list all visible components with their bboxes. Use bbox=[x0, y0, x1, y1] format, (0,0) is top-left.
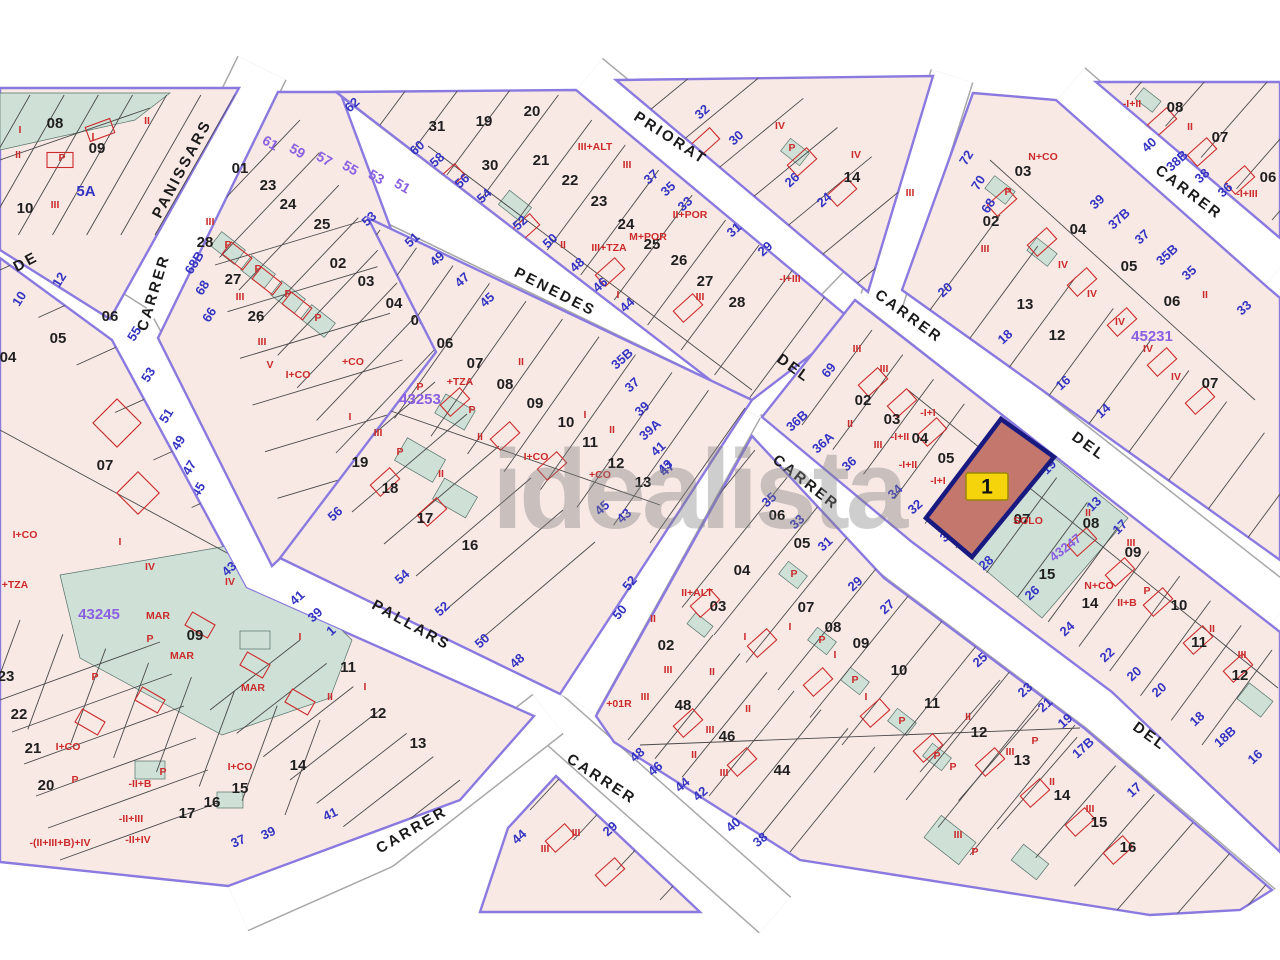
cadastre-annotation: III bbox=[853, 343, 862, 355]
parcel-number: 07 bbox=[97, 457, 114, 474]
parcel-number: 08 bbox=[47, 115, 64, 132]
parcel-number: 09 bbox=[187, 627, 204, 644]
cadastre-annotation: I bbox=[789, 621, 792, 633]
cadastre-annotation: I bbox=[865, 691, 868, 703]
cadastre-annotation: M+POR bbox=[629, 231, 667, 243]
parcel-number: 04 bbox=[386, 295, 403, 312]
cadastre-annotation: II bbox=[609, 424, 615, 436]
cadastre-annotation: II bbox=[847, 418, 853, 430]
parcel-number: 14 bbox=[844, 169, 861, 186]
cadastre-annotation: MAR bbox=[146, 610, 170, 622]
parcel-number: 06 bbox=[1164, 293, 1181, 310]
cadastre-annotation: I+CO bbox=[286, 369, 311, 381]
cadastre-annotation: II bbox=[1209, 623, 1215, 635]
cadastre-annotation: II bbox=[144, 115, 150, 127]
cadastre-annotation: I bbox=[299, 631, 302, 643]
parcel-number: 02 bbox=[855, 392, 872, 409]
cadastre-annotation: II+B bbox=[1117, 597, 1137, 609]
parcel-number: 03 bbox=[1015, 163, 1032, 180]
parcel-number: 02 bbox=[658, 637, 675, 654]
parcel-number: 30 bbox=[482, 157, 499, 174]
cadastre-annotation: P bbox=[933, 750, 940, 762]
parcel-number: 11 bbox=[340, 659, 356, 676]
cadastre-annotation: II bbox=[560, 239, 566, 251]
cadastre-annotation: -I+II bbox=[1123, 98, 1141, 110]
parcel-number: 16 bbox=[462, 537, 479, 554]
parcel-number: 04 bbox=[0, 349, 17, 366]
cadastre-annotation: P bbox=[1143, 585, 1150, 597]
parcel-number: 02 bbox=[330, 255, 347, 272]
cadastre-annotation: I bbox=[19, 124, 22, 136]
cadastre-annotation: I+CO bbox=[13, 529, 38, 541]
parcel-number: 17 bbox=[179, 805, 196, 822]
parcel-number: 07 bbox=[467, 355, 484, 372]
parcel-number: 24 bbox=[280, 196, 297, 213]
parcel-number: 01 bbox=[232, 160, 249, 177]
parcel-number: 17 bbox=[417, 510, 434, 527]
house-number: 5A bbox=[76, 183, 95, 200]
parcel-number: 06 bbox=[769, 507, 786, 524]
cadastre-annotation: III+TZA bbox=[591, 242, 627, 254]
cadastre-annotation: II bbox=[691, 749, 697, 761]
cadastre-annotation: I bbox=[584, 409, 587, 421]
cadastre-annotation: III bbox=[874, 439, 883, 451]
cadastre-annotation: II bbox=[518, 356, 524, 368]
cadastre-annotation: P bbox=[790, 568, 797, 580]
parcel-number: 12 bbox=[1049, 327, 1066, 344]
parcel-number: 04 bbox=[1070, 221, 1087, 238]
cadastre-annotation: III bbox=[1006, 746, 1015, 758]
map-canvas[interactable]: 0809105A55IIIIPIIIII01232425282726020304… bbox=[0, 0, 1280, 960]
parcel-number: 11 bbox=[582, 434, 598, 451]
cadastre-annotation: IV bbox=[145, 561, 155, 573]
cadastre-annotation: P bbox=[314, 312, 321, 324]
parcel-number: 16 bbox=[204, 794, 221, 811]
parcel-number: 18 bbox=[382, 480, 399, 497]
parcel-number: 22 bbox=[11, 706, 28, 723]
cadastre-annotation: II bbox=[650, 613, 656, 625]
cadastre-annotation: +CO bbox=[342, 356, 364, 368]
cadastre-annotation: P bbox=[58, 152, 65, 164]
parcel-number: 03 bbox=[358, 273, 375, 290]
cadastre-annotation: P bbox=[468, 404, 475, 416]
cadastre-annotation: II bbox=[477, 431, 483, 443]
block-id: 45231 bbox=[1131, 328, 1173, 345]
parcel-number: 10 bbox=[891, 662, 908, 679]
cadastre-annotation: III bbox=[572, 827, 581, 839]
cadastre-annotation: I+CO bbox=[228, 761, 253, 773]
cadastre-annotation: I bbox=[349, 411, 352, 423]
cadastre-annotation: III bbox=[954, 829, 963, 841]
parcel-number: 48 bbox=[675, 697, 692, 714]
parcel-number: 13 bbox=[1014, 752, 1031, 769]
cadastre-annotation: I bbox=[744, 631, 747, 643]
cadastre-annotation: III bbox=[981, 243, 990, 255]
parcel-number: 05 bbox=[1121, 258, 1138, 275]
parcel-number: 10 bbox=[17, 200, 34, 217]
cadastre-annotation: II bbox=[327, 691, 333, 703]
cadastre-annotation: III bbox=[641, 691, 650, 703]
cadastre-annotation: P bbox=[788, 142, 795, 154]
parcel-number: 44 bbox=[774, 762, 791, 779]
parcel-number: 21 bbox=[25, 740, 42, 757]
cadastre-annotation: P bbox=[898, 715, 905, 727]
parcel-number: 06 bbox=[102, 308, 119, 325]
parcel-number: 14 bbox=[1054, 787, 1071, 804]
block-id: 43253 bbox=[399, 391, 441, 408]
parcel-number: 05 bbox=[794, 535, 811, 552]
cadastre-annotation: IV bbox=[1058, 259, 1068, 271]
parcel-number: 15 bbox=[1039, 566, 1056, 583]
cadastre-annotation: -II+III bbox=[119, 813, 143, 825]
parcel-number: 13 bbox=[1017, 296, 1034, 313]
cadastre-annotation: -I+II bbox=[899, 459, 917, 471]
cadastre-annotation: III bbox=[706, 724, 715, 736]
parcel-number: 04 bbox=[912, 430, 929, 447]
parcel-number: 27 bbox=[697, 273, 714, 290]
parcel-number: 23 bbox=[591, 193, 608, 210]
cadastre-annotation: I+CO bbox=[524, 451, 549, 463]
cadastre-annotation: III bbox=[374, 427, 383, 439]
parcel-number: 23 bbox=[260, 177, 277, 194]
cadastre-annotation: -I+I bbox=[930, 475, 946, 487]
parcel-number: 15 bbox=[1091, 814, 1108, 831]
parcel-number: 04 bbox=[734, 562, 751, 579]
parcel-number: 05 bbox=[938, 450, 955, 467]
parcel-number: 08 bbox=[825, 619, 842, 636]
cadastre-annotation: -II+IV bbox=[125, 834, 150, 846]
parcel-number: 03 bbox=[884, 411, 901, 428]
cadastre-annotation: III bbox=[236, 291, 245, 303]
cadastre-annotation: III bbox=[541, 843, 550, 855]
green-parcel bbox=[240, 631, 270, 649]
cadastre-annotation: P bbox=[1004, 186, 1011, 198]
cadastre-annotation: III bbox=[206, 216, 215, 228]
cadastre-annotation: II bbox=[1202, 289, 1208, 301]
cadastre-annotation: N+CO bbox=[1028, 151, 1057, 163]
cadastre-annotation: P bbox=[1031, 735, 1038, 747]
cadastre-annotation: II+POR bbox=[673, 209, 708, 221]
cadastre-annotation: II bbox=[1085, 507, 1091, 519]
cadastre-annotation: P bbox=[851, 674, 858, 686]
cadastre-annotation: MAR bbox=[241, 682, 265, 694]
cadastre-annotation: II bbox=[709, 666, 715, 678]
cadastre-annotation: I+CO bbox=[56, 741, 81, 753]
cadastre-annotation: -II+B bbox=[128, 778, 151, 790]
parcel-number: 26 bbox=[248, 308, 265, 325]
parcel-number: 14 bbox=[290, 757, 307, 774]
cadastre-annotation: -I+II bbox=[891, 431, 909, 443]
cadastre-annotation: IV bbox=[1087, 288, 1097, 300]
parcel-number: 11 bbox=[1191, 634, 1207, 651]
cadastre-annotation: +TZA bbox=[447, 376, 474, 388]
parcel-number: 21 bbox=[533, 152, 550, 169]
parcel-number: 22 bbox=[562, 172, 579, 189]
block-id: 43245 bbox=[78, 606, 120, 623]
cadastre-annotation: IV bbox=[851, 149, 861, 161]
cadastre-annotation: P bbox=[224, 239, 231, 251]
cadastre-annotation: III bbox=[258, 336, 267, 348]
cadastre-annotation: P bbox=[254, 263, 261, 275]
cadastre-annotation: I bbox=[119, 536, 122, 548]
cadastre-annotation: III bbox=[880, 363, 889, 375]
parcel-number: 07 bbox=[1202, 375, 1219, 392]
cadastre-annotation: III bbox=[664, 664, 673, 676]
parcel-number: 08 bbox=[1167, 99, 1184, 116]
cadastre-annotation: +CO bbox=[589, 469, 611, 481]
parcel-number: 16 bbox=[1120, 839, 1137, 856]
cadastre-annotation: IV bbox=[1115, 316, 1125, 328]
cadastre-annotation: III+ALT bbox=[578, 141, 613, 153]
parcel-number: 09 bbox=[527, 395, 544, 412]
cadastre-annotation: I bbox=[92, 131, 95, 143]
parcel-number: 13 bbox=[635, 474, 652, 491]
cadastre-annotation: II bbox=[1187, 121, 1193, 133]
cadastre-annotation: SOLO bbox=[1013, 515, 1043, 527]
parcel-number: 08 bbox=[497, 376, 514, 393]
parcel-number: 10 bbox=[558, 414, 575, 431]
parcel-number: 19 bbox=[476, 113, 493, 130]
cadastre-annotation: III bbox=[623, 159, 632, 171]
cadastre-annotation: IV bbox=[1171, 371, 1181, 383]
parcel-number: 09 bbox=[853, 635, 870, 652]
parcel-number: 07 bbox=[798, 599, 815, 616]
cadastre-annotation: P bbox=[71, 774, 78, 786]
parcel-number: 23 bbox=[0, 668, 14, 685]
parcel-number: 15 bbox=[232, 780, 249, 797]
parcel-number: 10 bbox=[1171, 597, 1188, 614]
cadastre-annotation: II bbox=[745, 703, 751, 715]
cadastre-annotation: III bbox=[1086, 803, 1095, 815]
cadastre-annotation: P bbox=[971, 846, 978, 858]
cadastre-annotation: V bbox=[266, 359, 273, 371]
parcel-number: 26 bbox=[671, 252, 688, 269]
cadastre-annotation: I bbox=[364, 681, 367, 693]
cadastral-map[interactable]: 0809105A55IIIIPIIIII01232425282726020304… bbox=[0, 0, 1280, 960]
parcel-number: 46 bbox=[719, 728, 736, 745]
cadastre-annotation: III bbox=[1238, 649, 1247, 661]
cadastre-annotation: IV bbox=[775, 120, 785, 132]
parcel-number: 14 bbox=[1082, 595, 1099, 612]
parcel-number: 02 bbox=[983, 213, 1000, 230]
parcel-number: 31 bbox=[429, 118, 446, 135]
parcel-number: 20 bbox=[524, 103, 541, 120]
parcel-number: 27 bbox=[225, 271, 242, 288]
cadastre-annotation: P bbox=[146, 633, 153, 645]
cadastre-annotation: P bbox=[91, 671, 98, 683]
cadastre-annotation: N+CO bbox=[1084, 580, 1113, 592]
parcel-number: 25 bbox=[314, 216, 331, 233]
cadastre-annotation: MAR bbox=[170, 650, 194, 662]
cadastre-annotation: P bbox=[949, 761, 956, 773]
cadastre-annotation: +TZA bbox=[2, 579, 29, 591]
parcel-number: 12 bbox=[370, 705, 387, 722]
parcel-number: 13 bbox=[410, 735, 427, 752]
cadastre-annotation: II bbox=[438, 468, 444, 480]
parcel-number: 05 bbox=[50, 330, 67, 347]
parcel-number: 06 bbox=[437, 335, 454, 352]
parcel-number: 06 bbox=[1260, 169, 1277, 186]
parcel-number: 11 bbox=[924, 695, 940, 712]
cadastre-annotation: III bbox=[696, 291, 705, 303]
cadastre-annotation: P bbox=[818, 634, 825, 646]
cadastre-annotation: III bbox=[1127, 537, 1136, 549]
parcel-number: 12 bbox=[971, 724, 988, 741]
parcel-number: 28 bbox=[197, 234, 214, 251]
cadastre-annotation: P bbox=[284, 288, 291, 300]
cadastre-annotation: P bbox=[159, 766, 166, 778]
cadastre-annotation: -I+III bbox=[779, 273, 800, 285]
cadastre-annotation: -I+I bbox=[920, 407, 936, 419]
parcel-number: 03 bbox=[710, 598, 727, 615]
cadastre-annotation: I bbox=[617, 289, 620, 301]
cadastre-annotation: II bbox=[965, 711, 971, 723]
cadastre-annotation: -I+III bbox=[1236, 188, 1257, 200]
cadastre-annotation: II bbox=[15, 149, 21, 161]
parcel-number: 19 bbox=[352, 454, 369, 471]
parcel-number: 07 bbox=[1212, 129, 1229, 146]
parcel-marker-number: 1 bbox=[981, 476, 993, 499]
cadastre-annotation: IV bbox=[225, 576, 235, 588]
cadastre-annotation: III bbox=[906, 187, 915, 199]
cadastre-annotation: +01R bbox=[606, 698, 632, 710]
parcel-number: 28 bbox=[729, 294, 746, 311]
cadastre-annotation: I bbox=[834, 649, 837, 661]
cadastre-annotation: III bbox=[51, 199, 60, 211]
cadastre-annotation: II bbox=[1049, 776, 1055, 788]
cadastre-annotation: III bbox=[720, 767, 729, 779]
cadastre-annotation: P bbox=[396, 446, 403, 458]
parcel-marker[interactable]: 1 bbox=[966, 473, 1008, 500]
cadastre-annotation: II+ALT bbox=[681, 587, 713, 599]
parcel-number: 12 bbox=[1232, 667, 1249, 684]
cadastre-annotation: -(II+III+B)+IV bbox=[30, 837, 91, 849]
parcel-number: 20 bbox=[38, 777, 55, 794]
